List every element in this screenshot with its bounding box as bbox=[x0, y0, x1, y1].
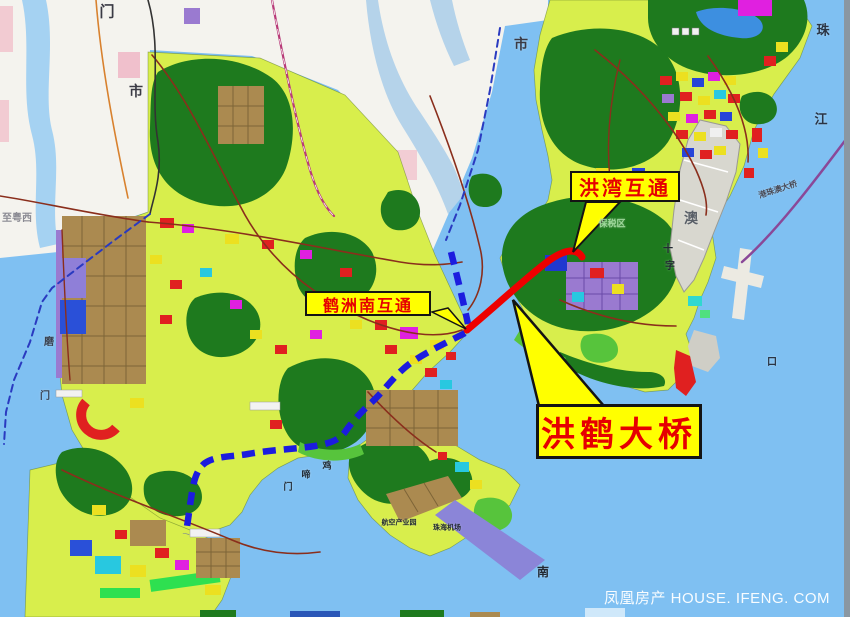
callout-hezhounan-interchange: 鹤洲南互通 bbox=[305, 291, 431, 316]
callout-hongwan-label: 洪湾互通 bbox=[579, 172, 671, 201]
callout-hongwan-interchange: 洪湾互通 bbox=[570, 171, 680, 202]
planning-map: 洪湾互通 鹤洲南互通 洪鹤大桥 门市市珠江澳十字口至粤西磨门鸡啼门南航空产业园珠… bbox=[0, 0, 850, 617]
pink-parcel bbox=[118, 52, 140, 78]
magenta-parcel bbox=[738, 0, 772, 16]
callout-honghe-bridge-label: 洪鹤大桥 bbox=[541, 407, 697, 456]
watermark: 凤凰房产 HOUSE. IFENG. COM bbox=[604, 587, 830, 608]
callout-hezhounan-label: 鹤洲南互通 bbox=[323, 292, 413, 316]
map-edge bbox=[844, 0, 850, 617]
pink-parcel bbox=[0, 100, 9, 142]
pink-parcel bbox=[0, 6, 13, 52]
callout-honghe-bridge: 洪鹤大桥 bbox=[536, 404, 702, 459]
